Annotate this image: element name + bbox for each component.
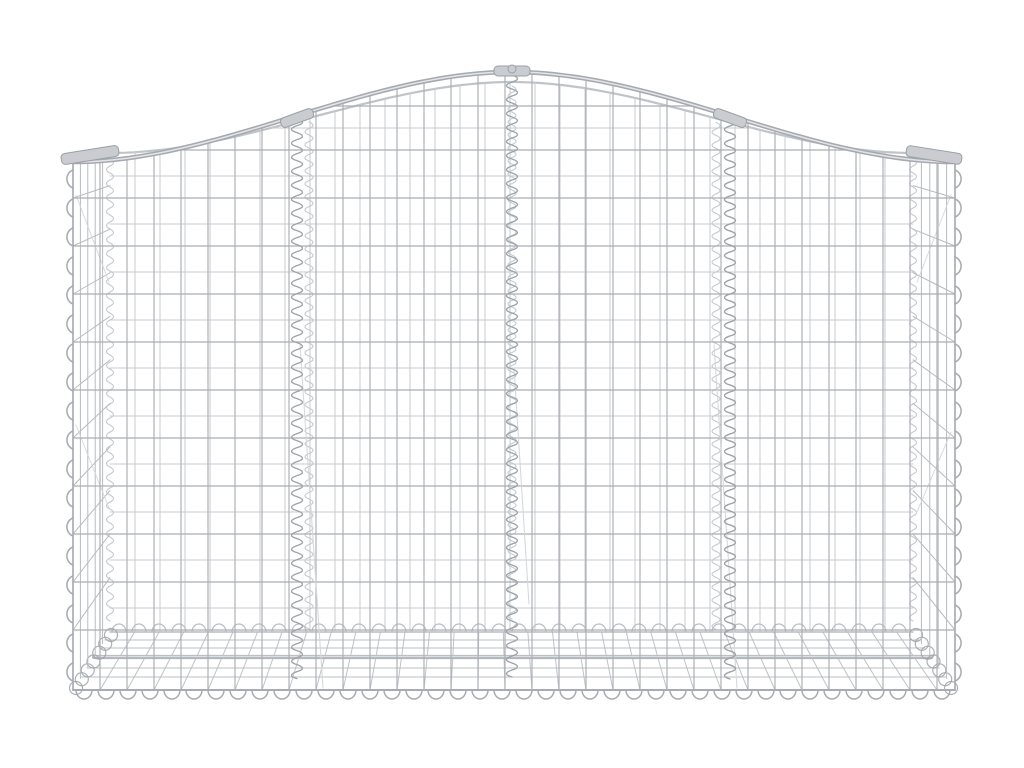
gabion-basket-image bbox=[0, 0, 1024, 768]
gabion-basket-svg bbox=[0, 0, 1024, 768]
product-image-stage bbox=[0, 0, 1024, 768]
product-photo bbox=[0, 0, 1024, 768]
